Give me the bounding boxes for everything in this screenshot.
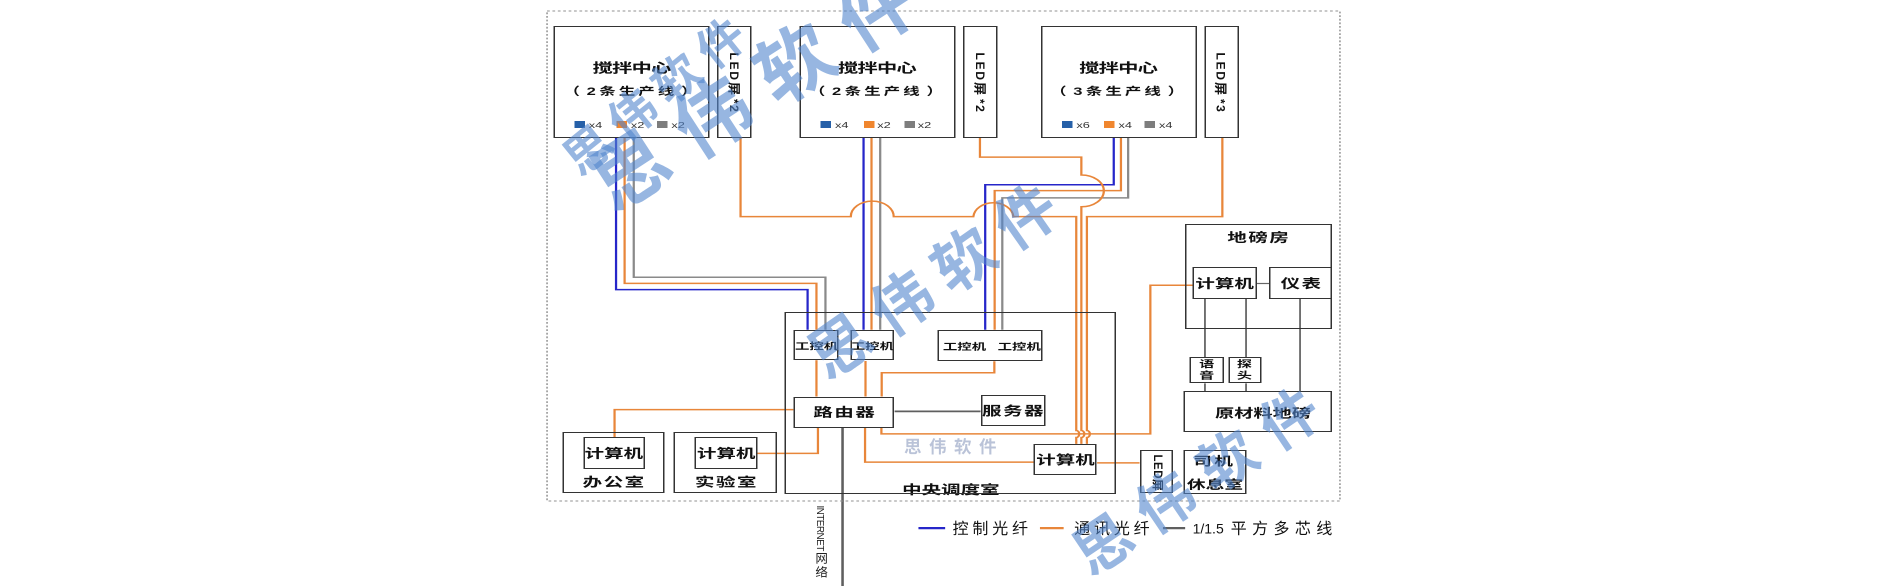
svg-text:INTERNET: INTERNET [814,506,825,552]
svg-text:LED: LED [1214,53,1228,82]
svg-text:*3: *3 [1214,99,1228,113]
svg-text:LED: LED [973,53,987,82]
svg-text:1/1.5: 1/1.5 [1193,521,1224,537]
svg-text:*2: *2 [973,99,987,113]
svg-text:LED: LED [727,53,741,82]
